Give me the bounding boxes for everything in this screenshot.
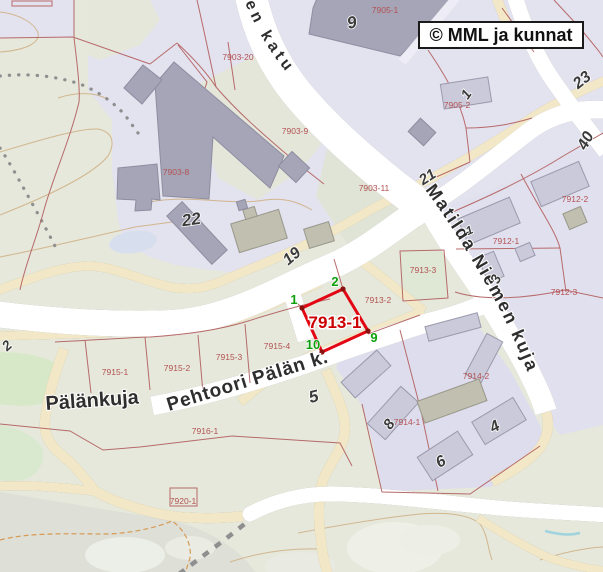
svg-text:7913-3: 7913-3: [410, 265, 437, 275]
svg-text:1: 1: [290, 292, 297, 307]
svg-text:7913-1: 7913-1: [309, 313, 362, 332]
svg-text:2: 2: [331, 274, 338, 289]
svg-text:7903-11: 7903-11: [359, 183, 390, 193]
svg-text:10: 10: [306, 337, 320, 352]
svg-text:9: 9: [370, 330, 377, 345]
svg-text:7915-2: 7915-2: [164, 363, 191, 373]
svg-text:7914-2: 7914-2: [463, 371, 490, 381]
svg-text:7905-2: 7905-2: [444, 100, 471, 110]
svg-text:7912-1: 7912-1: [493, 236, 520, 246]
svg-text:7915-1: 7915-1: [102, 367, 129, 377]
svg-text:22: 22: [180, 209, 203, 231]
svg-text:7916-1: 7916-1: [192, 426, 219, 436]
svg-text:7903-20: 7903-20: [222, 52, 253, 62]
svg-text:7912-2: 7912-2: [562, 194, 589, 204]
svg-text:7912-3: 7912-3: [551, 287, 578, 297]
svg-text:7915-4: 7915-4: [264, 341, 291, 351]
svg-text:7903-9: 7903-9: [282, 126, 309, 136]
svg-text:7915-3: 7915-3: [216, 352, 243, 362]
svg-text:© MML ja kunnat: © MML ja kunnat: [430, 25, 573, 45]
svg-text:7913-2: 7913-2: [365, 295, 392, 305]
svg-text:7903-8: 7903-8: [163, 167, 190, 177]
svg-text:7914-1: 7914-1: [394, 417, 421, 427]
svg-text:7905-1: 7905-1: [372, 5, 399, 15]
svg-text:7920-1: 7920-1: [170, 496, 197, 506]
